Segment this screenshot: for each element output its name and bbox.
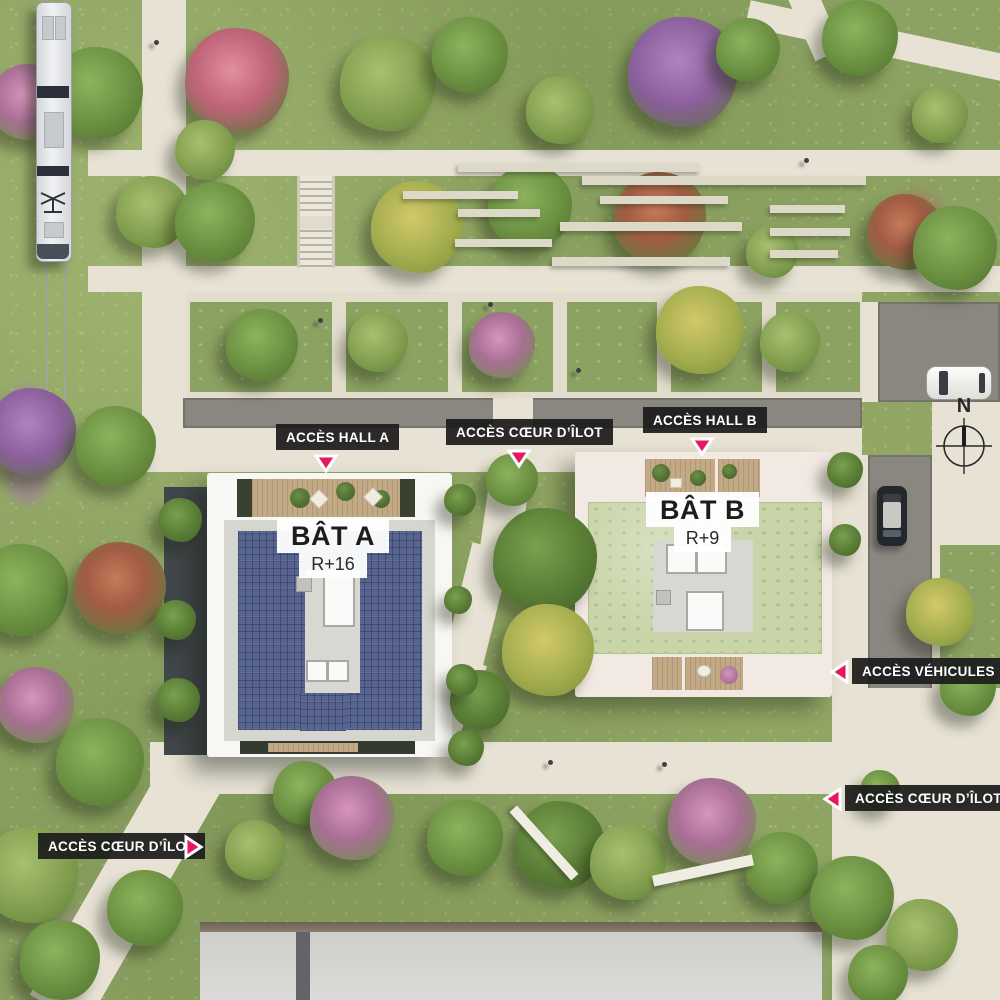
tree bbox=[0, 544, 68, 636]
access-arrow-down-icon bbox=[312, 452, 340, 474]
tram-articulation bbox=[37, 86, 69, 98]
compass-rose-icon bbox=[936, 418, 992, 476]
building-a-label: BÂT A R+16 bbox=[268, 518, 398, 578]
access-label-vehicules: ACCÈS VÉHICULES bbox=[852, 658, 1000, 684]
access-label-hall-b: ACCÈS HALL B bbox=[643, 407, 767, 433]
tram-roof-hatch bbox=[42, 16, 54, 40]
garden-wall-bench bbox=[510, 805, 579, 880]
path-diagonal-topright bbox=[745, 0, 1000, 83]
building-a-double-vent bbox=[306, 660, 328, 682]
tram-articulation bbox=[37, 166, 69, 176]
tree bbox=[225, 820, 285, 880]
access-arrow-left-icon bbox=[828, 659, 850, 685]
building-a-planter bbox=[400, 479, 415, 517]
building-a-roof-vent bbox=[296, 576, 312, 592]
terrace-table bbox=[697, 665, 711, 677]
building-a-planter bbox=[237, 479, 252, 517]
rooftop-main bbox=[310, 932, 822, 1000]
tree bbox=[488, 165, 572, 249]
tram-roof-hatch bbox=[55, 16, 66, 40]
concrete-strip bbox=[403, 191, 518, 199]
path-vertical-left bbox=[142, 0, 186, 472]
terrace-shrub bbox=[652, 464, 670, 482]
access-label-text: ACCÈS HALL A bbox=[286, 430, 389, 445]
building-b-roof-vent bbox=[656, 590, 671, 605]
concrete-strip bbox=[552, 257, 730, 266]
tree bbox=[590, 824, 666, 900]
building-a-double-vent bbox=[327, 660, 349, 682]
access-arrow-left-icon bbox=[821, 786, 843, 812]
building-a-name: BÂT A bbox=[277, 518, 389, 553]
building-a-shade-garden bbox=[164, 487, 208, 755]
car-rear-window bbox=[883, 530, 901, 537]
building-b-label: BÂT B R+9 bbox=[645, 492, 760, 552]
tree bbox=[427, 800, 503, 876]
concrete-strip bbox=[582, 176, 866, 185]
building-a-solar-extension bbox=[300, 693, 346, 731]
tree bbox=[432, 17, 508, 93]
access-label-text: ACCÈS CŒUR D’ÎLOT bbox=[456, 425, 603, 440]
building-b-south-terrace bbox=[652, 657, 682, 690]
garden-wall-bench bbox=[652, 855, 754, 887]
car-windshield bbox=[939, 371, 948, 395]
concrete-strip bbox=[458, 209, 540, 217]
terrace-shrub bbox=[290, 488, 310, 508]
terrace-flowers bbox=[720, 666, 738, 684]
access-label-hall-a: ACCÈS HALL A bbox=[276, 424, 399, 450]
tree bbox=[628, 17, 738, 127]
tram-roof-hatch bbox=[44, 112, 64, 148]
concrete-strip bbox=[455, 239, 552, 247]
access-arrow-down-icon bbox=[505, 447, 533, 469]
site-plan-map: BÂT A R+16 BÂT B R+9 ACCÈS HALL A ACCÈS … bbox=[0, 0, 1000, 1000]
path-horizontal-lower bbox=[88, 266, 1000, 292]
rooftop-left bbox=[200, 932, 296, 1000]
lawn-cell bbox=[776, 302, 860, 392]
access-label-text: ACCÈS VÉHICULES bbox=[862, 664, 995, 679]
tram-cab bbox=[37, 244, 69, 259]
terrace-shrub bbox=[336, 482, 355, 501]
tree bbox=[74, 542, 166, 634]
plaza-bottom-right bbox=[832, 688, 1000, 1000]
access-label-text: ACCÈS CŒUR D’ÎLOT bbox=[855, 791, 1000, 806]
access-label-text: ACCÈS CŒUR D’ÎLOT bbox=[48, 839, 195, 854]
building-b-skylight-large bbox=[686, 591, 724, 631]
rooftop-edge-strip bbox=[200, 922, 822, 932]
lawn-cell bbox=[567, 302, 657, 392]
terrace-table bbox=[670, 478, 682, 488]
access-arrow-right-icon bbox=[183, 834, 205, 860]
building-a-south-deck bbox=[268, 743, 358, 752]
sidewalk-parking bbox=[862, 302, 878, 402]
tree bbox=[0, 667, 74, 743]
car-rear-window bbox=[979, 373, 985, 393]
tree bbox=[516, 801, 604, 889]
lawn-cell bbox=[671, 302, 762, 392]
access-label-text: ACCÈS HALL B bbox=[653, 413, 757, 428]
building-a-skylight bbox=[323, 575, 355, 627]
lawn-cell bbox=[190, 302, 332, 392]
compass: N bbox=[936, 396, 992, 476]
car-roof bbox=[883, 502, 901, 528]
tree bbox=[56, 718, 144, 806]
tram-pantograph-icon bbox=[38, 190, 68, 216]
car-dark bbox=[877, 486, 907, 546]
building-a-floors: R+16 bbox=[299, 553, 367, 578]
tree bbox=[526, 76, 594, 144]
tree bbox=[371, 181, 463, 273]
tree bbox=[614, 172, 706, 264]
tram-roof-hatch bbox=[44, 222, 64, 238]
access-label-coeur-ilot-left: ACCÈS CŒUR D’ÎLOT bbox=[38, 833, 205, 859]
tree bbox=[175, 182, 255, 262]
lawn-cell bbox=[462, 302, 553, 392]
rooftop-gap bbox=[296, 932, 310, 1000]
car-windshield bbox=[883, 494, 901, 502]
concrete-strip bbox=[770, 205, 845, 213]
concrete-strip bbox=[560, 222, 742, 231]
access-label-coeur-ilot-right: ACCÈS CŒUR D’ÎLOT bbox=[845, 785, 1000, 811]
concrete-strip bbox=[770, 228, 850, 236]
tree bbox=[746, 832, 818, 904]
compass-north-letter: N bbox=[957, 396, 971, 416]
terrace-shrub bbox=[690, 470, 706, 486]
stairs-landing bbox=[300, 216, 332, 229]
tree bbox=[340, 35, 436, 131]
terrace-shrub bbox=[722, 464, 737, 479]
concrete-strip bbox=[600, 196, 728, 204]
building-b-floors: R+9 bbox=[674, 527, 732, 552]
path-horizontal-upper bbox=[88, 150, 1000, 176]
concrete-strip bbox=[770, 250, 838, 258]
tree bbox=[912, 87, 968, 143]
access-label-coeur-ilot-top: ACCÈS CŒUR D’ÎLOT bbox=[446, 419, 613, 445]
lawn-cell bbox=[346, 302, 448, 392]
flower-patch bbox=[885, 190, 945, 250]
building-b-name: BÂT B bbox=[646, 492, 759, 527]
tree bbox=[185, 28, 289, 132]
access-arrow-down-icon bbox=[688, 435, 716, 457]
